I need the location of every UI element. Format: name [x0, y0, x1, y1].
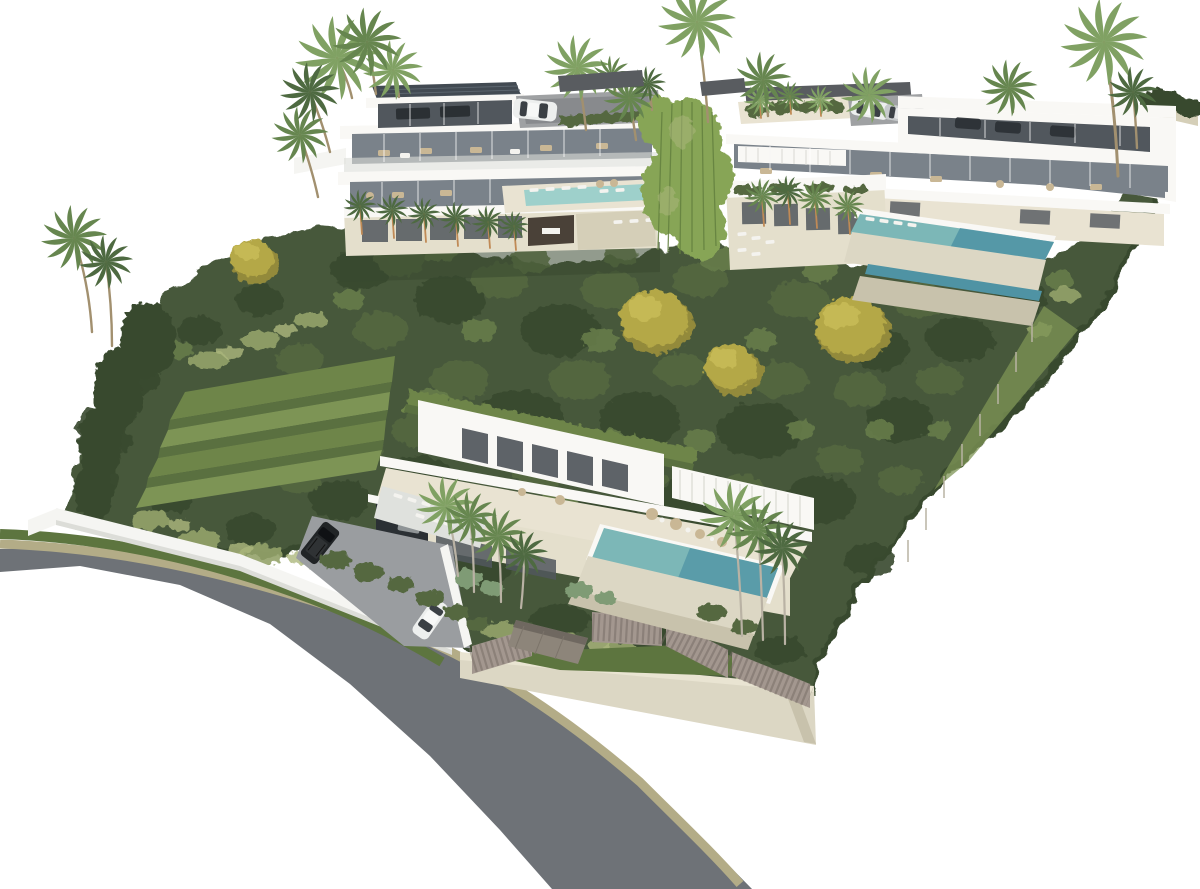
- penthouse: [366, 82, 524, 128]
- render-canvas: [0, 0, 1200, 889]
- entry-table: [542, 228, 560, 234]
- aerial-render: [0, 0, 1200, 889]
- base-stone-block: [576, 210, 656, 250]
- terrace-l2: [344, 128, 658, 172]
- penthouse-interior: [396, 107, 430, 119]
